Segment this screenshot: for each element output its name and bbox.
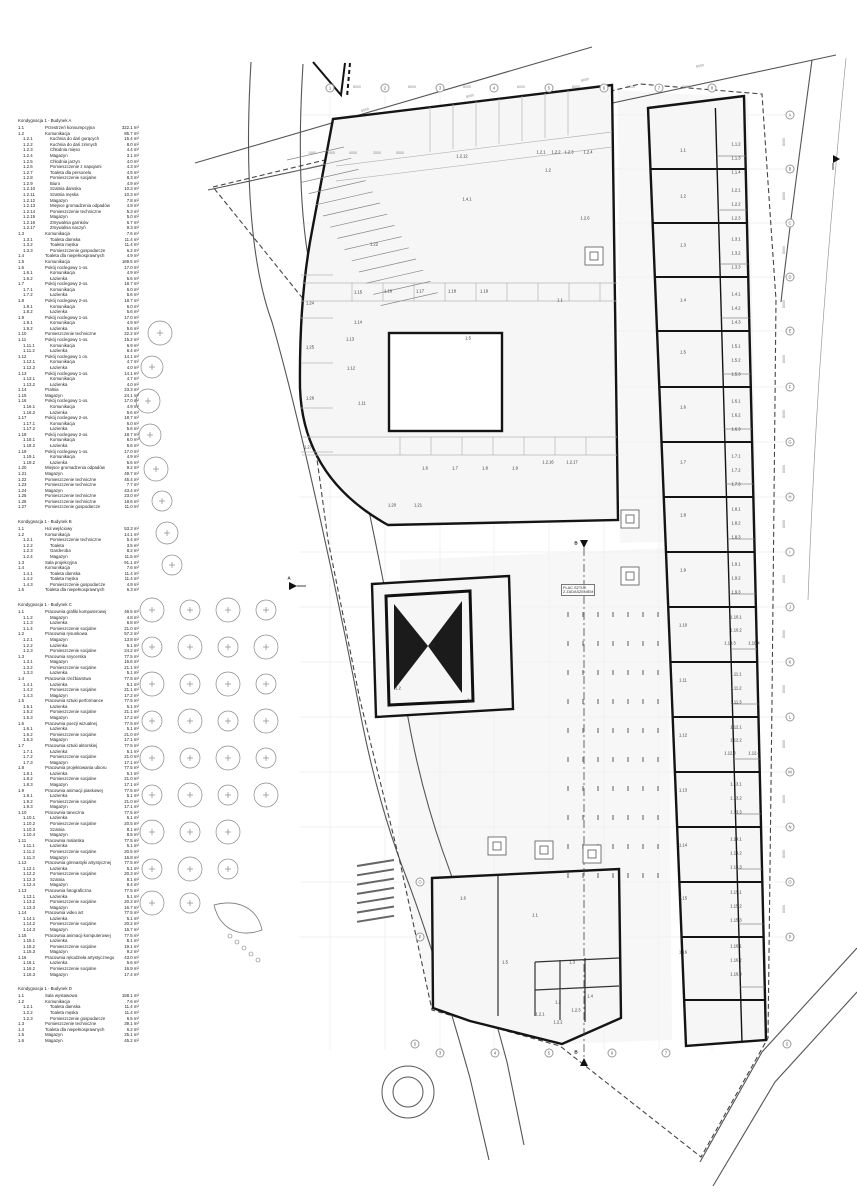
room-label: 1.2.2: [731, 202, 740, 207]
room-label: 1.2.16: [542, 460, 553, 465]
grid-bubble: 1: [326, 84, 335, 93]
dimension-text: 8000: [353, 85, 361, 89]
grid-bubble: H: [786, 493, 795, 502]
dimension-text: 8000: [782, 630, 786, 638]
room-name: Pomieszczenie gospodarcze: [45, 504, 123, 510]
paving-dots: [228, 934, 260, 962]
room-label: 1.2.2: [553, 1020, 562, 1025]
canopy-column: [621, 510, 639, 528]
canopy-column: [621, 567, 639, 585]
room-label: 1.13.1: [730, 782, 741, 787]
room-label: 1.1: [557, 298, 563, 303]
room-label: 1.11: [679, 678, 687, 683]
room-label: 1.4: [587, 994, 593, 999]
room-label: 1.10.4: [748, 641, 759, 646]
room-label: 1.12.1: [730, 725, 741, 730]
grid-bubble: L: [786, 713, 795, 722]
dimension-text: 8000: [782, 246, 786, 254]
legend-section: Kondygnacja 1 - Budynek B1.1Hol wejściow…: [18, 519, 139, 593]
room-label: 1.15.1: [730, 890, 741, 895]
room-label: 1.2.1: [731, 188, 740, 193]
grid-bubble: C: [786, 219, 795, 228]
roundabout-inner: [393, 1077, 423, 1107]
room-label: 1.1.4: [731, 170, 740, 175]
room-label: 1.1.3: [731, 156, 740, 161]
room-label: 1.15.3: [730, 918, 741, 923]
room-label: 1.2.3: [564, 150, 573, 155]
room-label: 1.13: [346, 337, 354, 342]
room-schedule: Kondygnacja 1 - Budynek A1.1Przestrzeń k…: [18, 118, 139, 1053]
room-label: 1.1.2: [731, 142, 740, 147]
dimension-text: 8000: [782, 355, 786, 363]
grid-bubble: S: [783, 1040, 792, 1049]
canopy-column: [585, 247, 603, 265]
dimension-text: 8000: [782, 138, 786, 146]
room-label: 1.4.3: [731, 320, 740, 325]
room-label: 1.27: [304, 445, 312, 450]
room-label: 1.12.3: [724, 751, 735, 756]
dimension-text: 5000: [396, 151, 404, 155]
room-label: 1.10: [679, 623, 687, 628]
room-number: 1.6: [18, 1038, 45, 1044]
legend-section-title: Kondygnacja 1 - Budynek B: [18, 519, 139, 525]
room-label: 1.17: [416, 289, 424, 294]
room-label: 1.13.3: [730, 810, 741, 815]
grid-bubble: 4: [491, 1049, 500, 1058]
crosswalk-stripe: [357, 897, 394, 903]
road-edge: [781, 60, 812, 302]
room-label: 1.5: [465, 336, 471, 341]
grid-bubble: 6: [608, 1049, 617, 1058]
room-label: 1.11.3: [730, 700, 741, 705]
dimension-text: 8000: [782, 740, 786, 748]
grid-bubble: A: [786, 111, 795, 120]
grid-bubble: O: [786, 878, 795, 887]
room-label: 1.22: [370, 242, 378, 247]
room-label: 1.9.1: [731, 562, 740, 567]
room-label: 1.2.17: [566, 460, 577, 465]
dimension-text: 8000: [782, 465, 786, 473]
grid-bubble: S: [411, 1040, 420, 1049]
room-label: 1.14.2: [730, 851, 741, 856]
room-label: 1.16: [384, 289, 392, 294]
dimension-text: 2000: [373, 151, 381, 155]
room-label: 1.3: [680, 243, 686, 248]
dimension-text: 8000: [782, 300, 786, 308]
grid-bubble: D: [786, 273, 795, 282]
room-label: 1.2.3: [731, 216, 740, 221]
room-label: 1.7.2: [731, 468, 740, 473]
room-label: 1.3: [429, 643, 435, 648]
room-number: 1.16.3: [18, 972, 50, 978]
room-label: 1.12.2: [730, 738, 741, 743]
room-label: 1.2: [545, 168, 551, 173]
room-label: 1.16: [679, 950, 687, 955]
room-label: 1.14: [679, 843, 687, 848]
grid-bubble: 3: [436, 84, 445, 93]
room-label: 1.2.2: [551, 150, 560, 155]
room-label: 1.15: [354, 290, 362, 295]
room-name: Magazyn: [50, 972, 122, 978]
room-label: 1.4.2: [731, 306, 740, 311]
room-label: 1.10.1: [730, 615, 741, 620]
room-label: 1.24: [306, 301, 314, 306]
legend-row: 1.5Toaleta dla niepełnosprawnych6.3 m²: [18, 587, 139, 593]
room-label: 1.3.2: [731, 251, 740, 256]
legend-section: Kondygnacja 1 - Budynek A1.1Przestrzeń k…: [18, 118, 139, 510]
room-label: 1.8: [680, 513, 686, 518]
room-label: 1.6: [460, 896, 466, 901]
room-name: Magazyn: [45, 1038, 122, 1044]
room-label: 1.3: [569, 960, 575, 965]
dimension-text: 4000: [349, 151, 357, 155]
plaza-label: PLAC SZTUK Z ZADASZENIEM: [561, 584, 595, 596]
legend-section-title: Kondygnacja 1 - Budynek A: [18, 118, 139, 124]
crosswalk-stripe: [357, 869, 394, 875]
road-edge: [808, 58, 846, 600]
room-label: 1.5.2: [731, 358, 740, 363]
room-label: 1.2.12: [456, 154, 467, 159]
room-label: 1.7.3: [731, 482, 740, 487]
dimension-text: 8000: [782, 192, 786, 200]
room-number: 1.5: [18, 587, 45, 593]
room-label: 1.8.3: [731, 535, 740, 540]
canopy-column: [488, 837, 506, 855]
room-label: 1.4.1: [462, 197, 471, 202]
dimension-text: 8000: [682, 85, 690, 89]
section-arrow: [580, 540, 588, 548]
section-marker-label: B: [574, 1050, 577, 1055]
canopy-column: [583, 845, 601, 863]
room-label: 1.6: [680, 405, 686, 410]
legend-section-title: Kondygnacja 1 - Budynek C: [18, 602, 139, 608]
room-label: 1.26: [306, 396, 314, 401]
section-arrow: [289, 582, 297, 590]
grid-bubble: P: [786, 933, 795, 942]
crosswalk-stripe: [357, 879, 394, 885]
room-label: 1.18: [448, 289, 456, 294]
room-label: 1.11.1: [730, 672, 741, 677]
grid-bubble: 7: [662, 1049, 671, 1058]
room-area: 11.0 m²: [123, 504, 139, 510]
room-label: 1.6.1: [731, 399, 740, 404]
dimension-text: 8000: [572, 85, 580, 89]
room-label: 1.9.3: [731, 590, 740, 595]
room-label: 1.9: [512, 466, 518, 471]
room-label: 1.5: [502, 960, 508, 965]
room-label: 1.2.1: [536, 150, 545, 155]
grid-bubble: O: [416, 878, 425, 887]
room-label: 1.6: [422, 466, 428, 471]
section-marker-label: A: [287, 576, 290, 581]
dimension-text: 8000: [782, 410, 786, 418]
dimension-text: 2405: [327, 151, 335, 155]
grid-bubble: 2: [381, 84, 390, 93]
room-label: 1.8.2: [731, 521, 740, 526]
grid-bubble: M: [786, 768, 795, 777]
section-marker-label: B: [574, 541, 577, 546]
room-label: 1.8: [482, 466, 488, 471]
room-label: 1.12: [347, 366, 355, 371]
room-name: Toaleta dla niepełnosprawnych: [45, 587, 125, 593]
dimension-text: 8000: [782, 520, 786, 528]
room-label: 1.4.1: [731, 292, 740, 297]
grid-bubble: G: [786, 438, 795, 447]
room-label: 1.7: [680, 460, 686, 465]
dimension-text: 8000: [782, 685, 786, 693]
room-label: 1.4: [680, 298, 686, 303]
room-label: 1.1: [532, 913, 538, 918]
legend-row: 1.16.3Magazyn17.4 m²: [18, 972, 139, 978]
room-label: 1.2.1: [535, 1012, 544, 1017]
dimension-text: 8000: [463, 85, 471, 89]
room-label: 1.13: [679, 788, 687, 793]
dimension-text: 1565: [308, 151, 316, 155]
room-label: 1.16.2: [730, 958, 741, 963]
legend-row: 1.6Magazyn45.2 m²: [18, 1038, 139, 1044]
crosswalk-stripe: [357, 916, 394, 922]
room-label: 1.7.1: [731, 454, 740, 459]
room-label: 1.14.1: [730, 837, 741, 842]
room-area: 6.3 m²: [125, 587, 139, 593]
room-label: 1.13.2: [730, 796, 741, 801]
grid-bubble: K: [786, 658, 795, 667]
room-label: 1.6.2: [731, 413, 740, 418]
room-label: 1.14.3: [730, 865, 741, 870]
room-label: 1.12.4: [748, 751, 759, 756]
room-label: 1.19: [480, 289, 488, 294]
grid-bubble: 5: [545, 1049, 554, 1058]
room-label: 1.7: [452, 466, 458, 471]
dimension-text: 8000: [627, 85, 635, 89]
wall-fragment: [347, 63, 350, 97]
legend-section-title: Kondygnacja 1 - Budynek D: [18, 986, 139, 992]
dimension-text: 8000: [782, 575, 786, 583]
legend-section: Kondygnacja 1 - Budynek D1.1Sala wystawo…: [18, 986, 139, 1043]
roundabout: [382, 1066, 434, 1118]
grid-bubble: 5: [545, 84, 554, 93]
room-label: 1.5.3: [731, 372, 740, 377]
room-label: 1.2.4: [583, 150, 592, 155]
room-label: 1.2: [680, 194, 686, 199]
floor-plan-sheet: Kondygnacja 1 - Budynek A1.1Przestrzeń k…: [0, 0, 857, 1200]
room-label: 1.10.2: [730, 628, 741, 633]
room-label: 1.2.3: [571, 1008, 580, 1013]
room-label: 1.2: [395, 686, 401, 691]
room-number: 1.27: [18, 504, 45, 510]
building-a-courtyard: [389, 333, 502, 431]
room-label: 1.2.6: [580, 216, 589, 221]
plaza-label-line2: Z ZADASZENIEM: [563, 590, 593, 595]
grid-bubble: 3: [436, 1049, 445, 1058]
room-label: 1.15.2: [730, 904, 741, 909]
room-label: 1.9.2: [731, 576, 740, 581]
grid-bubble: E: [786, 327, 795, 336]
room-label: 1.5: [680, 350, 686, 355]
room-area: 45.2 m²: [122, 1038, 139, 1044]
room-label: 1.1: [467, 698, 473, 703]
room-label: 1.16.1: [730, 944, 741, 949]
room-label: 1.12: [679, 733, 687, 738]
dimension-text: 8000: [782, 795, 786, 803]
room-label: 1.10.3: [724, 641, 735, 646]
legend-section: Kondygnacja 1 - Budynek C1.1Pracownia gr…: [18, 602, 139, 977]
room-label: 1.21: [414, 503, 422, 508]
room-label: 1.6.3: [731, 427, 740, 432]
room-label: 1.3.3: [731, 265, 740, 270]
grid-bubble: 4: [490, 84, 499, 93]
room-label: 1.15: [679, 896, 687, 901]
room-label: 1.14: [354, 320, 362, 325]
crosswalk-stripe: [357, 907, 394, 913]
landscape-curve: [214, 903, 262, 933]
crosswalk-stripe: [357, 860, 394, 866]
crosswalk-stripe: [357, 888, 394, 894]
room-label: 1.2: [555, 1000, 561, 1005]
room-label: 1.16.3: [730, 972, 741, 977]
room-label: 1.11.2: [730, 686, 741, 691]
room-label: 1.20: [388, 503, 396, 508]
room-area: 17.4 m²: [122, 972, 139, 978]
dimension-text: 8000: [782, 905, 786, 913]
room-label: 1.5.1: [731, 344, 740, 349]
grid-bubble: J: [786, 603, 795, 612]
canopy-column: [535, 841, 553, 859]
grid-bubble: P: [416, 933, 425, 942]
room-label: 1.9: [680, 568, 686, 573]
room-label: 1.3.1: [731, 237, 740, 242]
grid-bubble: N: [786, 823, 795, 832]
grid-bubble: F: [786, 383, 795, 392]
dimension-text: 8000: [408, 85, 416, 89]
room-label: 1.8.1: [731, 507, 740, 512]
dimension-text: 8000: [782, 850, 786, 858]
legend-row: 1.27Pomieszczenie gospodarcze11.0 m²: [18, 504, 139, 510]
room-label: 1.1: [680, 148, 686, 153]
room-label: 1.11: [358, 401, 366, 406]
grid-bubble: 7: [655, 84, 664, 93]
grid-bubble: 6: [600, 84, 609, 93]
grid-bubble: 8: [708, 84, 717, 93]
grid-bubble: B: [786, 165, 795, 174]
room-label: 1.25: [306, 345, 314, 350]
grid-bubble: I: [786, 548, 795, 557]
dimension-text: 8000: [517, 85, 525, 89]
